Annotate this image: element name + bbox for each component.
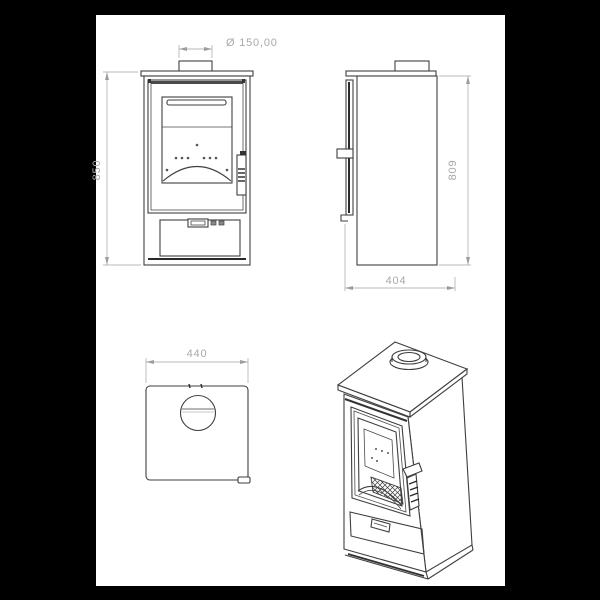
hinge-left — [148, 79, 151, 83]
perspective-view — [338, 342, 473, 579]
iso-flue-collar — [390, 350, 428, 370]
stove-technical-drawing: 850 Ø 150,00 809 404 — [0, 0, 600, 600]
top-shadow-band — [151, 81, 243, 84]
side-height-label: 809 — [447, 160, 459, 181]
edge-tick-1 — [189, 384, 190, 388]
latch-right — [219, 221, 224, 225]
top-plate-side — [346, 71, 436, 76]
front-height-label: 850 — [91, 160, 103, 181]
flue-collar — [179, 61, 212, 72]
product-image: 850 Ø 150,00 809 404 — [0, 0, 600, 600]
handle-top-view — [238, 477, 250, 483]
top-outline — [146, 386, 248, 480]
side-handle — [337, 149, 353, 158]
flue-diameter-label: Ø 150,00 — [226, 37, 278, 49]
handle-cap — [240, 151, 246, 155]
door-handle — [237, 155, 246, 195]
edge-tick-2 — [201, 384, 202, 388]
top-width-label: 440 — [187, 348, 208, 360]
flue-collar-side — [395, 61, 429, 72]
side-depth-label: 404 — [386, 275, 407, 287]
latch-left — [211, 221, 216, 225]
stove-body-side — [357, 76, 437, 265]
top-plate — [141, 71, 253, 76]
hinge-right — [242, 79, 245, 83]
